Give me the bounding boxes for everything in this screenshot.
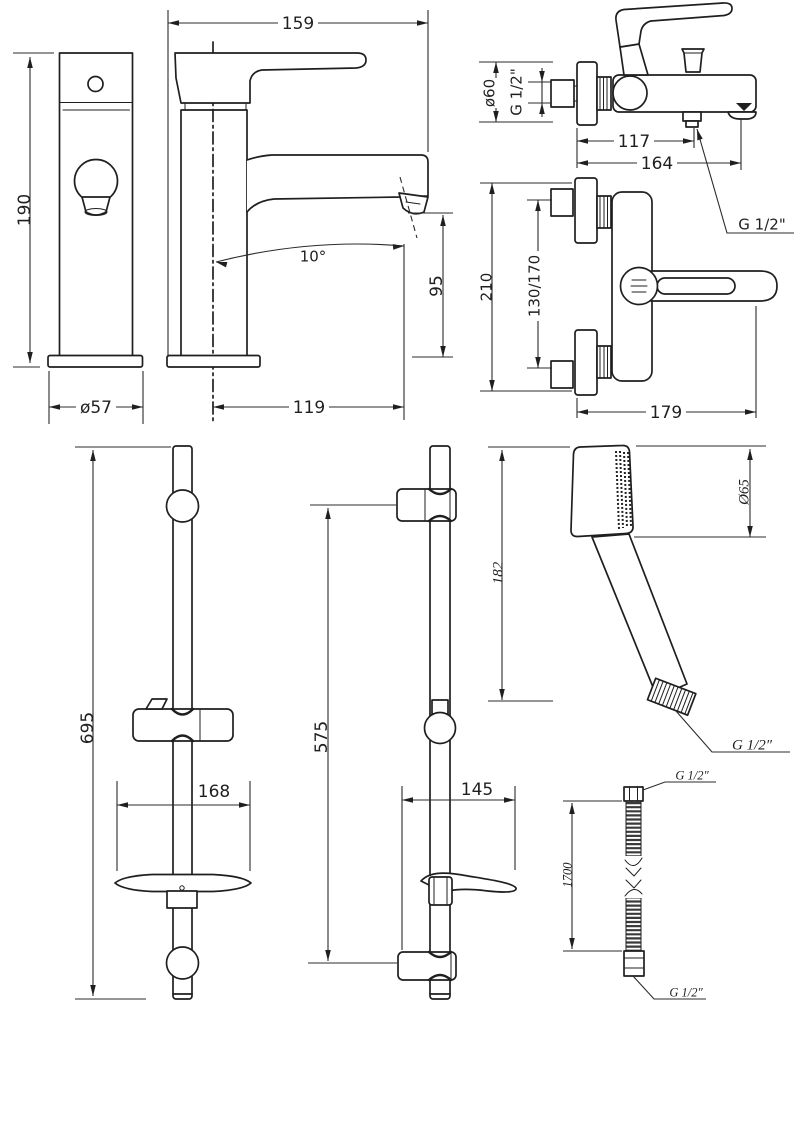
bath-width-label: 179 (650, 403, 682, 423)
bath-mixer-front-view: 210 130/170 179 (477, 178, 777, 423)
wall-escutcheon (577, 62, 597, 125)
shelf-width-label: 145 (461, 780, 493, 800)
bath-height-label: 210 (477, 273, 495, 302)
hose-length-label: 1700 (561, 862, 575, 888)
diverter-knob (682, 49, 704, 72)
dish-clamp (167, 891, 197, 908)
shower-rail-short-view: 575 145 (308, 446, 516, 999)
technical-drawing: 190 ø57 159 10 (0, 0, 794, 1123)
dim-basin-height: 190 (13, 53, 54, 367)
spout-reach-label: 119 (293, 398, 325, 418)
spout-outlet (728, 112, 756, 119)
inlet-nut-bottom (551, 361, 573, 388)
bath-length-label: 164 (641, 154, 673, 174)
spout-ball (75, 160, 118, 203)
escutcheon-bottom (575, 330, 597, 395)
hose-outlet-thread-label: G 1/2" (738, 215, 785, 233)
shelf-clamp (429, 877, 452, 905)
hand-shower-thread-label: G 1/2″ (732, 737, 773, 753)
base-plate-side (167, 356, 260, 368)
base-plate (48, 356, 143, 368)
dim-soap-dish-width: 168 (117, 781, 250, 871)
spout-height-label: 95 (427, 275, 447, 297)
dim-head-diameter: Ø65 (634, 446, 766, 537)
hand-shower-view: 182 Ø65 G 1/2″ (488, 445, 790, 753)
leader-hose-outlet-thread: G 1/2" (694, 128, 794, 233)
handle-neck (620, 44, 648, 75)
shower-hose-view: 1700 G 1/2″ G 1/2″ (561, 769, 717, 1000)
head-diameter-label: Ø65 (736, 479, 752, 506)
dim-hand-shower-length: 182 (488, 447, 570, 701)
holder-clip (146, 699, 167, 709)
basin-mixer-front-view: 190 ø57 (13, 53, 143, 424)
dim-shelf-width: 145 (402, 780, 515, 950)
hose-fitting-bottom (624, 951, 644, 976)
dim-inlet-thread: G 1/2" (507, 68, 551, 117)
rail-short-length-label: 575 (312, 721, 332, 753)
outlet-offset-label: 117 (618, 132, 650, 152)
basin-base-diameter-label: ø57 (80, 398, 112, 418)
aerator (82, 197, 110, 215)
faucet-column (181, 110, 247, 356)
rail-long-length-label: 695 (78, 712, 98, 744)
dim-rail-short-length: 575 (308, 505, 397, 963)
soap-dish-width-label: 168 (198, 782, 230, 802)
escutcheon-diameter-label: ø60 (480, 79, 498, 107)
inlet-nut (551, 80, 574, 107)
wall-bracket-top (167, 490, 199, 522)
basin-mixer-side-view: 159 10° 95 119 (167, 10, 453, 422)
technical-drawing-sheet: 190 ø57 159 10 (0, 0, 794, 1123)
slider-knob (425, 713, 456, 744)
shower-head (571, 445, 633, 536)
inlet-thread-label: G 1/2" (507, 68, 525, 115)
dim-spout-height: 95 (408, 213, 453, 357)
shower-rail-long-view: 695 168 (75, 446, 251, 999)
basin-height-label: 190 (15, 194, 35, 226)
hose-thread-top-label: G 1/2″ (675, 769, 709, 783)
dim-spout-reach: 119 (213, 244, 404, 420)
inlet-nut-top (551, 189, 573, 216)
slider-bracket-top (397, 489, 456, 521)
shower-handle (592, 534, 687, 697)
wall-bracket-bottom (167, 947, 199, 979)
dim-spout-angle: 10° (215, 243, 404, 267)
handle-pin (88, 77, 103, 92)
leader-hose-thread-bottom: G 1/2″ (633, 976, 706, 1000)
mixer-lever (616, 3, 732, 47)
dim-outlet-offset: 117 (577, 128, 694, 168)
dim-inlet-centers: 130/170 (525, 200, 552, 368)
escutcheon-top (575, 178, 597, 243)
dim-bath-length: 164 (577, 118, 741, 174)
hose-connector (647, 678, 695, 715)
faucet-lever (175, 53, 366, 103)
joint-ball (613, 76, 647, 110)
hose-outlet (683, 112, 701, 121)
dim-basin-base-diameter: ø57 (49, 371, 143, 424)
spout-angle-label: 10° (300, 247, 327, 265)
soap-dish (115, 875, 251, 892)
leader-hose-thread-top: G 1/2″ (643, 769, 716, 791)
inlet-centers-label: 130/170 (525, 255, 543, 317)
hand-shower-length-label: 182 (490, 561, 506, 584)
leader-hand-shower-thread: G 1/2″ (676, 711, 790, 753)
dim-hose-length: 1700 (561, 801, 623, 951)
hose-thread-bottom-label: G 1/2″ (669, 986, 703, 1000)
basin-length-label: 159 (282, 14, 314, 34)
hose-fitting-top (624, 787, 643, 801)
